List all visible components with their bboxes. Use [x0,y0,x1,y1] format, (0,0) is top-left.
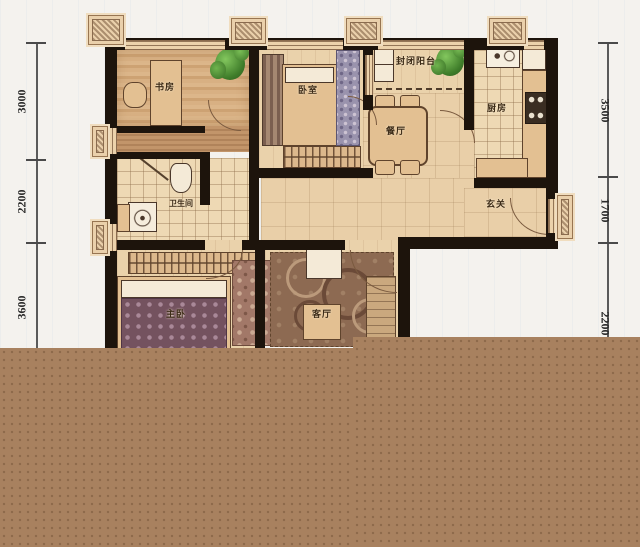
bedroom-wardrobe-bottom [283,146,361,168]
wall-study-bottom [117,126,205,133]
dim-tick-left-1 [26,42,46,44]
study-desk [150,60,182,126]
hall-floor [261,178,474,240]
study-plant-icon [215,48,245,80]
dim-tick-right-1 [598,42,618,44]
crop-overlay-left [0,348,353,547]
wall-kitchen-left [464,38,474,130]
wall-bedroom-left [249,38,259,250]
kitchen-label: 厨房 [480,105,514,114]
entry-label: 玄关 [480,201,512,210]
pillar-top-4 [489,18,526,44]
dining-chair-bottom-left [375,160,395,175]
bathroom-washer [128,202,157,232]
floor-plan-canvas: 书房 卧室 封闭阳台 厨房 餐厅 卫生间 玄关 主卧 客厅 3000 2200 … [0,0,640,547]
dining-chair-bottom-right [400,160,420,175]
crop-overlay-right [353,337,640,547]
dim-right-1700: 1700 [598,193,613,229]
dim-tick-left-2 [26,159,46,161]
bedroom-window [267,40,343,50]
master-bedroom-label: 主卧 [160,311,192,320]
kitchen-stove [525,92,547,124]
pillar-top-2 [231,18,266,44]
bedroom-wardrobe-left [262,54,284,146]
balcony-window [378,40,464,50]
sill-left-lower [92,221,108,254]
living-coffee-table [306,246,342,279]
balcony-inner-window [365,55,373,95]
pillar-top-1 [88,15,124,45]
bathroom-sink-cabinet [117,204,130,232]
bathroom-toilet [170,163,192,193]
wall-left [105,38,117,348]
sill-left-upper [92,126,108,157]
balcony-sliding-track [376,88,462,90]
living-room-label: 客厅 [306,311,338,320]
left-window-upper [107,128,117,154]
wall-bathroom-top [117,152,210,159]
kitchen-fridge [522,48,546,70]
dim-left-3000: 3000 [15,84,30,120]
balcony-label: 封闭阳台 [388,58,444,67]
master-bed-pillows [121,280,227,298]
master-bed-duvet [121,298,227,350]
dining-label: 餐厅 [380,128,412,137]
wall-bathroom-stub [200,152,210,205]
wall-hall-bottom-east [242,240,345,250]
dimension-line-left [36,43,38,348]
wall-bedroom-bottom [259,168,373,178]
dim-left-2200: 2200 [15,184,30,220]
study-label: 书房 [147,84,183,93]
pillar-top-3 [346,18,381,44]
wall-hall-bottom-west [117,240,205,250]
wall-bottom-right-horizontal [398,237,558,249]
dim-tick-left-3 [26,242,46,244]
dim-right-3500: 3500 [598,93,613,129]
left-window-lower [107,224,117,251]
kitchen-counter-bottom [476,158,528,178]
study-window [125,40,225,50]
kitchen-window [524,40,544,50]
wall-master-living-divider [255,250,265,348]
wall-kitchen-bottom [474,178,546,188]
dim-tick-right-2 [598,176,618,178]
entry-door-bump [557,195,573,239]
dim-left-3600: 3600 [15,290,30,326]
bedroom-label: 卧室 [286,87,330,96]
dim-tick-right-3 [598,242,618,244]
bedroom-pillows [285,67,334,83]
bathroom-label: 卫生间 [160,200,202,208]
study-chair [123,82,147,108]
wall-lower-right-vertical [398,249,410,345]
